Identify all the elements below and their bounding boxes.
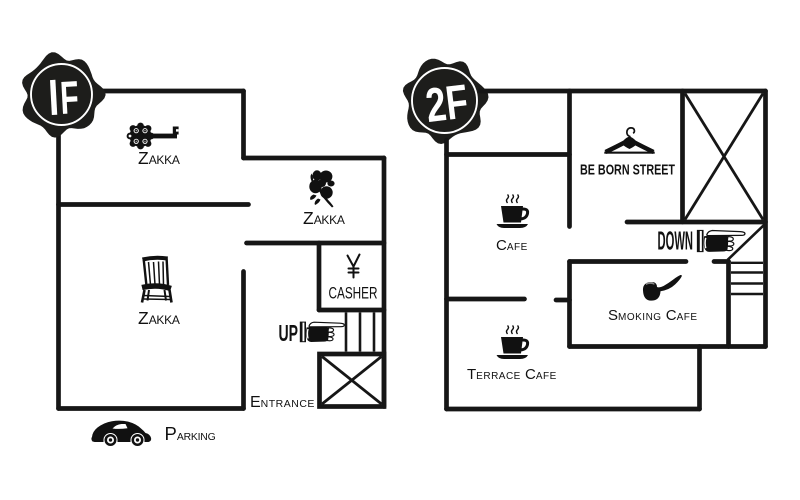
svg-text:2F: 2F [423,75,471,133]
svg-text:BE BORN STREET: BE BORN STREET [580,162,675,179]
svg-text:UP: UP [279,320,299,346]
svg-text:CASHER: CASHER [329,285,378,303]
svg-text:F: F [59,71,80,124]
svg-text:DOWN: DOWN [658,226,694,256]
